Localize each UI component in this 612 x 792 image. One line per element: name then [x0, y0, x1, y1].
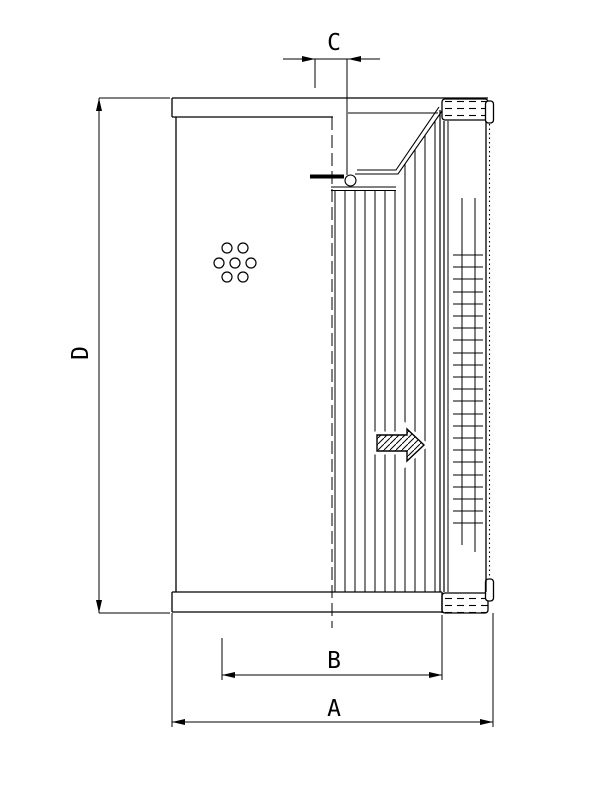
support-mesh-screen	[453, 198, 483, 552]
dim-d-arrow-down-icon	[96, 600, 102, 613]
top-seal-tab	[486, 101, 494, 123]
flow-direction-arrow-icon	[377, 429, 424, 461]
filter-element-drawing: C D B A	[0, 0, 612, 792]
dim-c-arrow-left-icon	[348, 56, 361, 62]
pleated-media	[335, 110, 448, 592]
dim-c-arrow-right-icon	[302, 56, 315, 62]
o-ring-seal	[345, 175, 356, 186]
dimension-a-label: A	[327, 696, 341, 722]
top-internal-structure	[310, 107, 442, 191]
cone-baffle-lower	[355, 111, 442, 174]
dimension-d	[96, 98, 170, 613]
dimension-d-label: D	[68, 346, 94, 360]
right-edge	[486, 121, 490, 592]
dimension-c-label: C	[327, 30, 341, 56]
dimension-b-label: B	[327, 648, 341, 674]
dim-b-arrow-left-icon	[222, 672, 235, 678]
drain-hole-pattern	[214, 243, 256, 282]
top-end-cap-section	[442, 99, 494, 123]
dim-a-arrow-left-icon	[172, 719, 185, 725]
drawing-page: C D B A	[0, 0, 612, 792]
dim-d-arrow-up-icon	[96, 98, 102, 111]
bottom-seal-tab	[486, 579, 494, 601]
dim-b-arrow-right-icon	[429, 672, 442, 678]
dimension-labels: C D B A	[68, 30, 341, 722]
drawing-root: C D B A	[68, 30, 494, 727]
dim-a-arrow-right-icon	[480, 719, 493, 725]
cone-baffle-upper	[357, 107, 439, 170]
